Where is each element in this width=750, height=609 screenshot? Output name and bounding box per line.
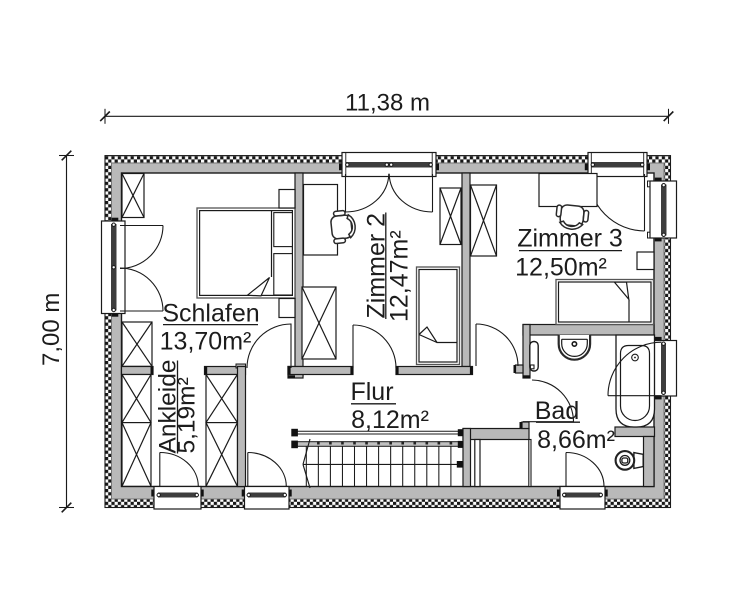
svg-text:13,70m²: 13,70m²: [160, 328, 252, 356]
svg-text:8,66m²: 8,66m²: [537, 426, 615, 454]
svg-text:Flur: Flur: [350, 378, 393, 406]
svg-text:12,50m²: 12,50m²: [515, 254, 607, 282]
svg-text:Bad: Bad: [535, 397, 579, 425]
svg-text:Schlafen: Schlafen: [162, 300, 259, 328]
svg-text:12,47m²: 12,47m²: [386, 230, 414, 322]
svg-text:11,38 m: 11,38 m: [345, 90, 430, 117]
svg-text:5,19m²: 5,19m²: [174, 377, 201, 453]
svg-text:Zimmer 3: Zimmer 3: [517, 225, 623, 253]
svg-text:7,00 m: 7,00 m: [38, 293, 65, 366]
svg-text:8,12m²: 8,12m²: [351, 406, 429, 434]
